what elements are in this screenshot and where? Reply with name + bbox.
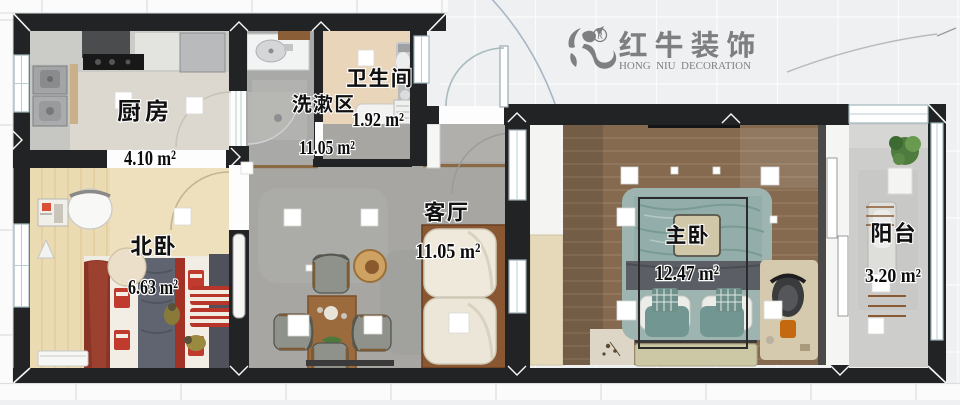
- svg-text:3.20 m²: 3.20 m²: [865, 265, 921, 287]
- svg-text:12.47 m²: 12.47 m²: [655, 261, 719, 285]
- svg-text:HONG NIU DECORATION: HONG NIU DECORATION: [619, 61, 751, 72]
- svg-text:1.92 m²: 1.92 m²: [352, 109, 404, 131]
- svg-text:R: R: [597, 31, 603, 41]
- svg-text:11.05 m²: 11.05 m²: [416, 239, 481, 263]
- svg-text:4.10 m²: 4.10 m²: [124, 146, 176, 170]
- svg-text:6.63 m²: 6.63 m²: [128, 275, 178, 299]
- svg-text:11.05 m²: 11.05 m²: [299, 137, 355, 159]
